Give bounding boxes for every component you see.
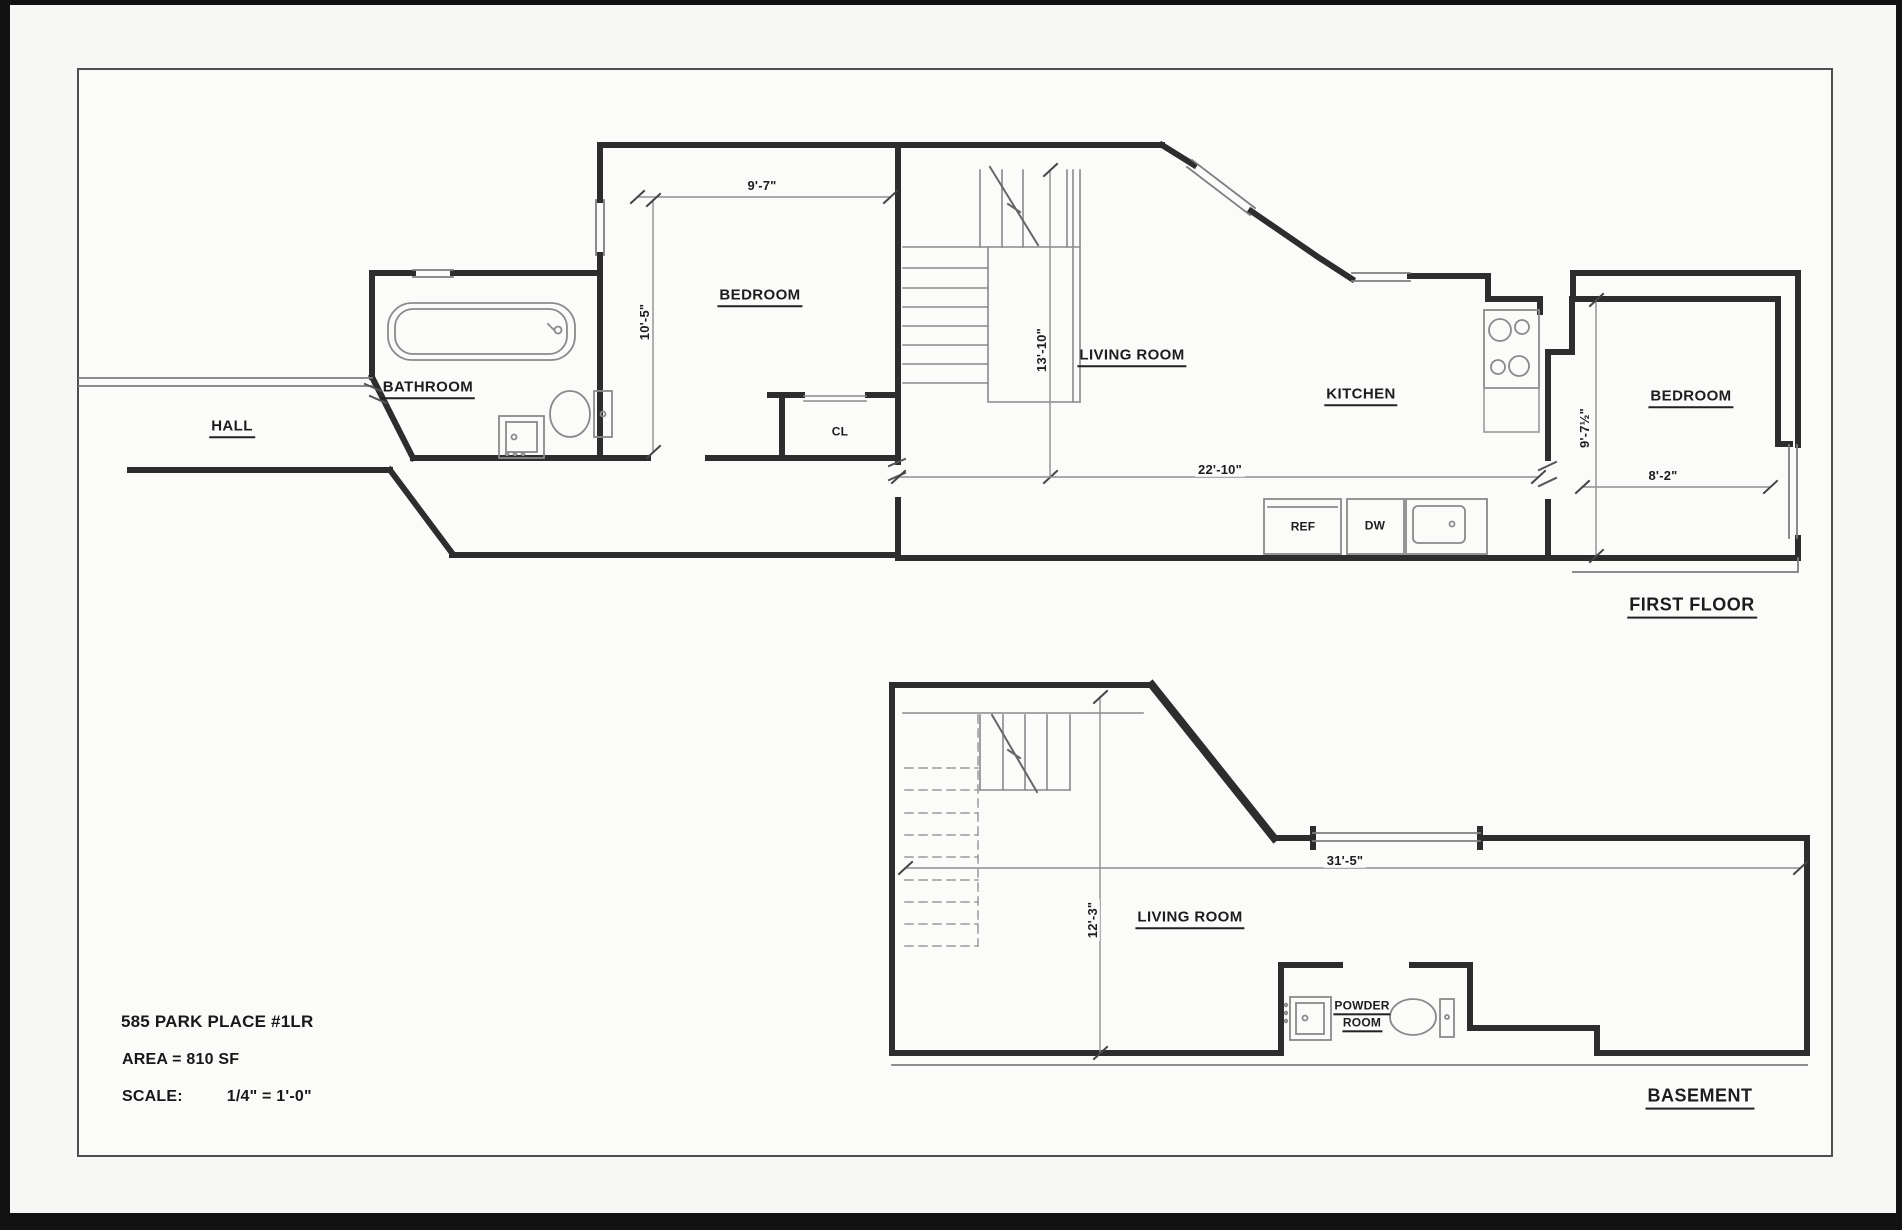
room-label-closet: CL xyxy=(832,425,848,438)
dim-living-kitchen-width: 22'-10" xyxy=(1195,463,1245,477)
scale-value: 1/4" = 1'-0" xyxy=(227,1088,312,1105)
dim-bedroom-right-depth: 9'-7½" xyxy=(1578,405,1592,451)
appliance-label-refrigerator: REF xyxy=(1291,520,1316,533)
title-block-scale: SCALE:1/4" = 1'-0" xyxy=(122,1088,312,1106)
title-block-address: 585 PARK PLACE #1LR xyxy=(121,1012,313,1032)
title-block-area: AREA = 810 SF xyxy=(122,1051,239,1069)
powder-room-line1: POWDER xyxy=(1333,999,1390,1015)
room-label-living-room-basement: LIVING ROOM xyxy=(1135,909,1244,929)
closet-door xyxy=(804,396,866,401)
room-label-hall: HALL xyxy=(209,418,255,438)
room-label-bathroom: BATHROOM xyxy=(381,379,475,399)
basement-title: BASEMENT xyxy=(1645,1087,1754,1110)
dim-bedroom-left-width: 9'-7" xyxy=(744,179,779,193)
room-label-bedroom-left: BEDROOM xyxy=(717,287,802,307)
dim-bedroom-right-width: 8'-2" xyxy=(1645,469,1680,483)
powder-room-toilet xyxy=(1390,999,1454,1037)
basement-stair xyxy=(903,713,1143,792)
scale-label: SCALE: xyxy=(122,1088,183,1105)
powder-room-line2: ROOM xyxy=(1342,1017,1382,1033)
bathtub xyxy=(388,303,575,360)
kitchen-sink xyxy=(1406,499,1487,554)
kitchen-counter xyxy=(1484,388,1539,432)
dim-living-room-depth: 13'-10" xyxy=(1035,325,1049,375)
dim-basement-width: 31'-5" xyxy=(1324,854,1366,868)
room-label-powder-room: POWDER ROOM xyxy=(1333,999,1390,1032)
dim-basement-depth: 12'-3" xyxy=(1086,899,1100,941)
basement-stair-dashed xyxy=(905,715,978,946)
dim-bedroom-left-depth: 10'-5" xyxy=(638,301,652,343)
powder-room-sink xyxy=(1285,997,1331,1040)
screenshot-root: HALL BATHROOM BEDROOM CL LIVING ROOM KIT… xyxy=(0,0,1902,1230)
room-label-bedroom-right: BEDROOM xyxy=(1648,388,1733,408)
room-label-kitchen: KITCHEN xyxy=(1324,386,1397,406)
first-floor-walls xyxy=(130,145,1798,558)
first-floor-title: FIRST FLOOR xyxy=(1627,596,1757,619)
windows xyxy=(79,160,1807,1065)
stove xyxy=(1484,310,1539,388)
room-label-living-room-first-floor: LIVING ROOM xyxy=(1077,347,1186,367)
first-floor-stair xyxy=(903,167,1080,402)
bathroom-sink xyxy=(499,416,544,458)
appliance-label-dishwasher: DW xyxy=(1365,519,1385,532)
floor-plan-linework xyxy=(0,0,1902,1230)
